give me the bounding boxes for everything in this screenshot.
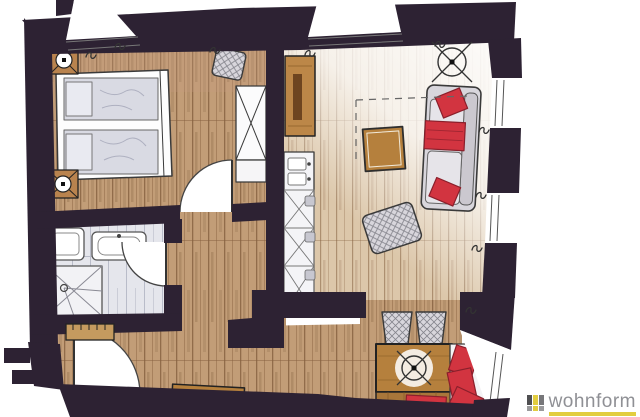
living-nook-wall: [284, 292, 366, 318]
faucet-dot-icon: [307, 162, 311, 166]
floor-plan-canvas: wohnform: [0, 0, 640, 417]
coffee-table: [363, 127, 406, 172]
bedroom-hall-wall: [232, 202, 268, 222]
sideboard: [285, 56, 315, 136]
logo-text-wrap: wohnform: [549, 393, 636, 416]
floor-plan-svg: [0, 0, 640, 417]
exterior-stub: [4, 348, 30, 363]
wohnform-logo: wohnform: [527, 393, 636, 416]
logo-grid-cell: [527, 406, 532, 411]
window-opening: [308, 0, 401, 37]
logo-grid-row: [527, 395, 544, 405]
wohnform-logo-text: wohnform: [549, 393, 636, 410]
ceiling-lamp-icon: [395, 349, 433, 387]
bath-right-wall-top: [164, 219, 182, 243]
wohnform-logo-grid-icon: [527, 395, 544, 411]
bottom-right-corner-wall: [472, 398, 510, 417]
right-wall-segment: [488, 38, 522, 78]
faucet-dot-icon: [307, 177, 311, 181]
pillow-bottom: [66, 134, 92, 170]
double-bed: [56, 70, 172, 180]
logo-grid-cell: [533, 406, 538, 411]
sofa: [421, 85, 481, 212]
logo-grid-cell: [539, 406, 544, 411]
logo-grid-cell: [533, 395, 538, 405]
dressing-stool: [211, 47, 246, 81]
exterior-stub: [12, 370, 36, 384]
radiator: [66, 324, 114, 340]
wicker-chair: [416, 312, 446, 344]
wardrobe: [236, 86, 266, 182]
logo-grid-cell: [527, 395, 532, 405]
red-blanket: [424, 121, 465, 151]
right-wall-segment: [487, 128, 521, 193]
faucet-dot-icon: [117, 234, 121, 238]
kitchen-counter: [284, 152, 315, 312]
wohnform-logo-underline: [549, 412, 636, 416]
logo-grid-cell: [539, 395, 544, 405]
logo-grid-row: [527, 406, 544, 411]
right-wall-segment: [482, 243, 517, 298]
wicker-chair: [382, 312, 412, 344]
pillow-top: [66, 82, 92, 116]
ceiling-lamp-icon: [432, 42, 472, 82]
